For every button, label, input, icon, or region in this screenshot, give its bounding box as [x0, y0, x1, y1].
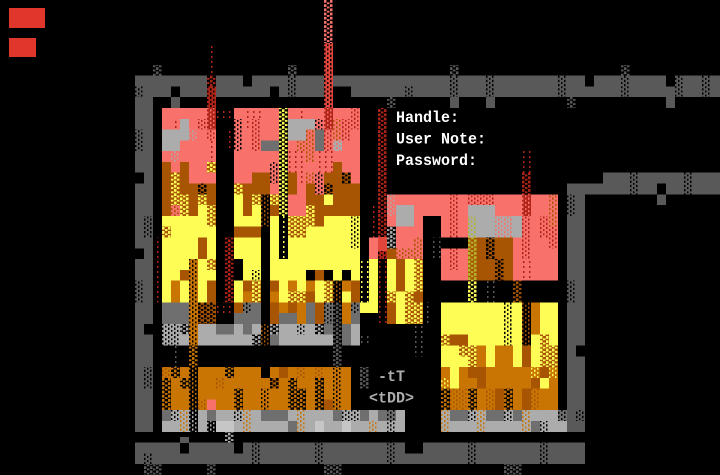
- svg-text:-tT: -tT: [378, 368, 405, 386]
- svg-text:Handle:: Handle:: [396, 109, 459, 127]
- svg-text:<tDD>: <tDD>: [369, 390, 414, 408]
- svg-text:User Note:: User Note:: [396, 131, 486, 149]
- svg-text:Password:: Password:: [396, 152, 477, 170]
